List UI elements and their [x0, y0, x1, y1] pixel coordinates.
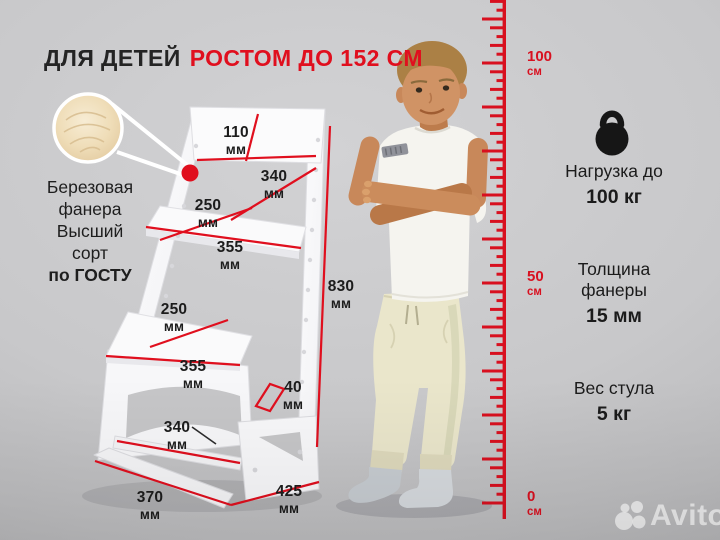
page-title: ДЛЯ ДЕТЕЙРОСТОМ ДО 152 СМ — [44, 45, 423, 72]
kettlebell-icon — [590, 104, 634, 158]
spec-weight: Вес стула 5 кг — [534, 378, 694, 426]
measurement-seat-width: 355 мм — [217, 239, 243, 273]
material-line: Березовая — [18, 176, 162, 198]
spec-load-value: 100 кг — [534, 186, 694, 209]
avito-watermark-text: Avito — [650, 501, 720, 531]
spec-thickness-label: Толщина фанеры — [534, 259, 694, 301]
measurement-rail-width: 40 мм — [283, 379, 303, 413]
spec-weight-label: Вес стула — [534, 378, 694, 399]
avito-product-infographic: ДЛЯ ДЕТЕЙРОСТОМ ДО 152 СМ Березовая фане… — [0, 0, 720, 540]
ruler-label-100: 100 см — [527, 49, 552, 79]
measurement-base-depth: 370 мм — [137, 489, 163, 523]
title-prefix: ДЛЯ ДЕТЕЙ — [44, 45, 181, 71]
measurement-backrest-height: 110 мм — [223, 124, 249, 158]
measurement-footrest-width: 355 мм — [180, 358, 206, 392]
material-line: сорт — [18, 242, 162, 264]
wood-magnifier — [54, 94, 199, 182]
spec-weight-value: 5 кг — [534, 403, 694, 426]
height-ruler — [482, 0, 506, 519]
spec-thickness: Толщина фанеры 15 мм — [534, 259, 694, 328]
measurement-footrest-depth: 250 мм — [161, 301, 187, 335]
material-gost-line: по ГОСТУ — [18, 264, 162, 286]
measurement-seat-depth: 250 мм — [195, 197, 221, 231]
material-line: фанера — [18, 198, 162, 220]
material-line: Высший — [18, 220, 162, 242]
measurement-backrest-width: 340 мм — [261, 168, 287, 202]
bracket-rail-width — [256, 384, 284, 411]
ruler-label-0: 0 см — [527, 489, 542, 519]
avito-watermark: Avito — [612, 500, 720, 532]
title-highlight: РОСТОМ ДО 152 СМ — [190, 45, 423, 71]
spec-load: Нагрузка до 100 кг — [534, 161, 694, 209]
chair-illustration — [94, 107, 325, 508]
measurement-base-width: 425 мм — [276, 483, 302, 517]
spec-load-label: Нагрузка до — [534, 161, 694, 182]
boy-photo — [348, 41, 486, 508]
measurement-crossbar-width: 340 мм — [164, 419, 190, 453]
avito-logo-icon — [612, 500, 646, 532]
material-point-dot — [182, 165, 199, 182]
spec-thickness-value: 15 мм — [534, 305, 694, 328]
material-note: Березовая фанера Высший сорт по ГОСТУ — [18, 176, 162, 286]
measurement-chair-height: 830 мм — [328, 278, 354, 312]
